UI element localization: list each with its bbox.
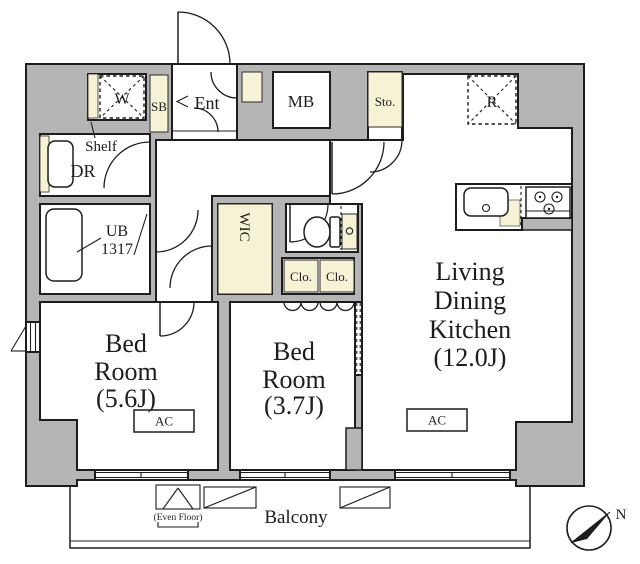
fridge-label: R bbox=[487, 94, 498, 111]
window-bedroom-second bbox=[240, 470, 330, 480]
balcony-label: Balcony bbox=[264, 507, 328, 528]
ldk-label-1: Living bbox=[435, 257, 504, 286]
vanity-sink bbox=[40, 136, 73, 192]
wic-door bbox=[170, 246, 212, 288]
bedroom-main-door bbox=[160, 302, 194, 336]
sliding-door bbox=[357, 303, 360, 374]
kitchen-wall-strip bbox=[522, 218, 572, 230]
closet-left-label: Clo. bbox=[290, 269, 312, 284]
bedroom-second-label-2: Room bbox=[262, 365, 326, 394]
entrance-arrow-icon bbox=[177, 96, 188, 107]
ac-outdoor-unit-icon bbox=[204, 487, 256, 508]
storage-label: Sto. bbox=[375, 94, 396, 109]
bedroom-main-label-2: Room bbox=[94, 357, 158, 386]
wall-step bbox=[346, 428, 362, 470]
floor-plan-drawing: Bed Room (5.6J) Bed Room (3.7J) Living D… bbox=[0, 0, 640, 564]
closet-bifold-doors bbox=[284, 302, 354, 311]
bath-label-2: 1317 bbox=[101, 241, 133, 258]
bedroom-second-size: (3.7J) bbox=[264, 391, 324, 420]
ldk-label-3: Kitchen bbox=[429, 315, 511, 344]
ldk-label-2: Dining bbox=[434, 286, 506, 315]
bath-label-1: UB bbox=[106, 223, 128, 240]
ldk-size: (12.0J) bbox=[434, 343, 507, 372]
shelf-label: Shelf bbox=[85, 139, 117, 155]
bedroom-second-label-1: Bed bbox=[273, 337, 315, 366]
window-side-casement bbox=[11, 322, 36, 352]
window-bedroom-main bbox=[95, 470, 188, 480]
ac-living-label: AC bbox=[428, 413, 446, 428]
even-floor-label: (Even Floor) bbox=[154, 512, 203, 523]
ac-bedroom-label: AC bbox=[155, 414, 173, 429]
bedroom-main-size: (5.6J) bbox=[96, 384, 156, 413]
dressing-room-label: DR bbox=[70, 161, 95, 181]
stove bbox=[526, 187, 570, 218]
living-door bbox=[332, 142, 384, 194]
closet-right-label: Clo. bbox=[326, 269, 348, 284]
washer-label: W bbox=[114, 91, 130, 108]
compass-icon bbox=[567, 506, 611, 550]
ac-outdoor-unit-icon-2 bbox=[340, 487, 390, 508]
bedroom-main-label-1: Bed bbox=[105, 329, 147, 358]
storage-door bbox=[370, 140, 402, 172]
entrance-label: Ent bbox=[195, 93, 220, 113]
shoe-box-label: SB bbox=[151, 99, 167, 114]
toilet bbox=[304, 206, 357, 250]
north-label: N bbox=[616, 507, 627, 523]
window-living bbox=[395, 470, 510, 480]
entrance-cabinet bbox=[242, 72, 262, 102]
bathtub bbox=[46, 209, 82, 281]
bath-door bbox=[156, 210, 198, 252]
floor-plan: Bed Room (5.6J) Bed Room (3.7J) Living D… bbox=[0, 0, 640, 564]
wic-label: WIC bbox=[236, 212, 252, 241]
entrance-door bbox=[178, 12, 230, 64]
meter-box-label: MB bbox=[288, 92, 314, 111]
